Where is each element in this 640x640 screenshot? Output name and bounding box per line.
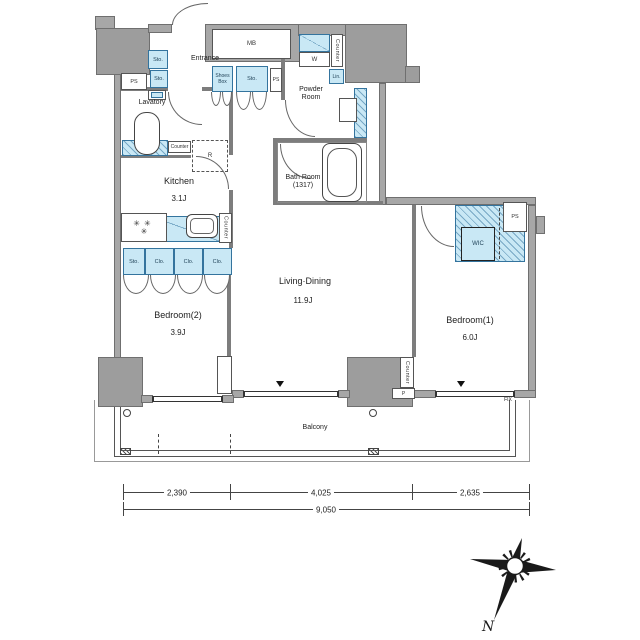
wall-bedroom1-bottom-right [514,390,536,398]
storage-label: Sto. [153,57,163,63]
storage-box: Sto. [148,50,168,69]
wall-living-bedroom1 [412,205,416,357]
wall-right [528,205,536,395]
counter-label: Counter [404,361,410,384]
washer-space [299,34,330,52]
shoes-box-doors [211,92,233,108]
pipe-space-label: PS [130,79,137,85]
storage-label: Sto. [247,76,257,82]
wic-box: WIC [461,227,495,261]
column-bottom-left [98,357,143,407]
wall-bedroom1-bottom-left [414,390,436,398]
bedroom2-size: 3.9J [153,328,203,337]
living-window [243,391,339,397]
pipe-space: PS [270,68,282,92]
bedroom1-window [435,391,515,397]
powder-counter-box: Counter [331,34,343,67]
wall-bedroom2-bottom-right [222,395,234,403]
dim-seg3: 2,635 [457,489,483,498]
closet-label: Clo. [155,259,165,265]
dim-seg1: 2,390 [164,489,190,498]
lavatory-door-arc [168,92,202,125]
balcony-partition-dashed [230,434,231,454]
linen-box: Lin. [329,69,344,84]
storage-label: Sto. [129,259,139,265]
powder-line1: Powder [299,86,323,93]
balcony-label: Balcony [283,424,347,432]
powder-door-arc [285,100,315,137]
balcony-drain [120,448,131,455]
dim-tick [529,484,530,500]
living-counter-box: Counter [400,357,414,388]
wic-hanger-pipe [499,208,500,259]
floorplan-canvas: Balcony FIX MB Entrance Sto. Sto. PS Sho… [0,0,640,640]
dim-seg2: 4,025 [308,489,334,498]
kitchen-stove: ✳✳✳ [121,213,167,242]
pipe-space-label: PS [273,77,280,83]
balcony-drain-circle [123,409,131,417]
meter-box-label: MB [247,41,256,47]
kitchen-counter-box: Counter [219,213,232,243]
wall-living-bottom-right [338,390,350,398]
closet-folding-doors [123,275,232,295]
bathtub-inner [327,148,357,197]
north-label: N [481,619,495,635]
linen-label: Lin. [332,74,340,80]
bedroom2-window [152,396,223,402]
storage-doors [236,92,268,112]
balcony-drain-circle [369,409,377,417]
closet-clo: Clo. [203,248,232,275]
bathroom-label: Bath Room(1317) [278,174,328,190]
storage-label: Sto. [154,76,164,82]
dim-tick [529,502,530,516]
entrance-label: Entrance [180,55,230,63]
bedroom1-door-arc [421,206,454,247]
counter-label: Counter [171,144,189,150]
pipe-space: PS [503,202,527,232]
pipe-space-label: PS [511,214,518,220]
counter-label: Counter [223,216,229,239]
shoes-box-label2: Box [218,79,227,85]
washer-label: W [312,57,318,63]
wic-label: WIC [472,241,484,247]
lavatory-sink [134,112,160,155]
bedroom2-sliding-door [217,356,232,394]
dim-tick [123,502,124,516]
fix-window-label: FIX [499,398,517,404]
column-top-right-step [405,66,420,83]
column-top-left [96,28,150,75]
closet-label: Clo. [213,259,223,265]
bedroom2-label: Bedroom(2) [138,310,218,320]
lavatory-counter-box: Counter [168,141,191,153]
bedroom1-label: Bedroom(1) [428,315,512,325]
wall-left [114,74,121,359]
kitchen-size: 3.1J [158,194,200,203]
powder-sink [339,98,357,122]
dim-tick [230,484,231,500]
wall-right-tab [536,216,545,234]
balcony-drain [368,448,379,455]
pipe-space: PS [121,73,147,90]
entrance-storage: Sto. [236,66,268,92]
balcony-partition-dashed [158,434,159,454]
bedroom1-size: 6.0J [443,333,497,342]
wall-top-entrance [148,24,172,33]
pipe-label: P [402,391,405,397]
column-top-right [345,24,407,83]
storage-box: Sto. [150,70,168,88]
counter-label: Counter [334,39,340,62]
closet-sto: Sto. [123,248,145,275]
dim-tick [123,484,124,500]
entrance-door-arc [172,3,208,25]
closet-label: Clo. [184,259,194,265]
closet-clo: Clo. [174,248,203,275]
bath-line1: Bath Room [285,174,320,181]
dim-tick [412,484,413,500]
wall-service-right [379,83,386,205]
closet-clo: Clo. [145,248,174,275]
living-size: 11.9J [268,296,338,305]
compass-icon: N [452,528,592,638]
washer-box: W [299,52,330,67]
bath-line2: (1317) [293,182,313,189]
pipe-box: P [392,388,415,399]
dim-total: 9,050 [313,506,339,515]
entry-marker [276,381,284,387]
entry-marker [457,381,465,387]
shoes-box: ShoesBox [212,66,233,92]
burner-icon: ✳ [141,228,148,235]
living-label: Living·Dining [253,276,357,286]
kitchen-sink-inner [190,218,214,234]
